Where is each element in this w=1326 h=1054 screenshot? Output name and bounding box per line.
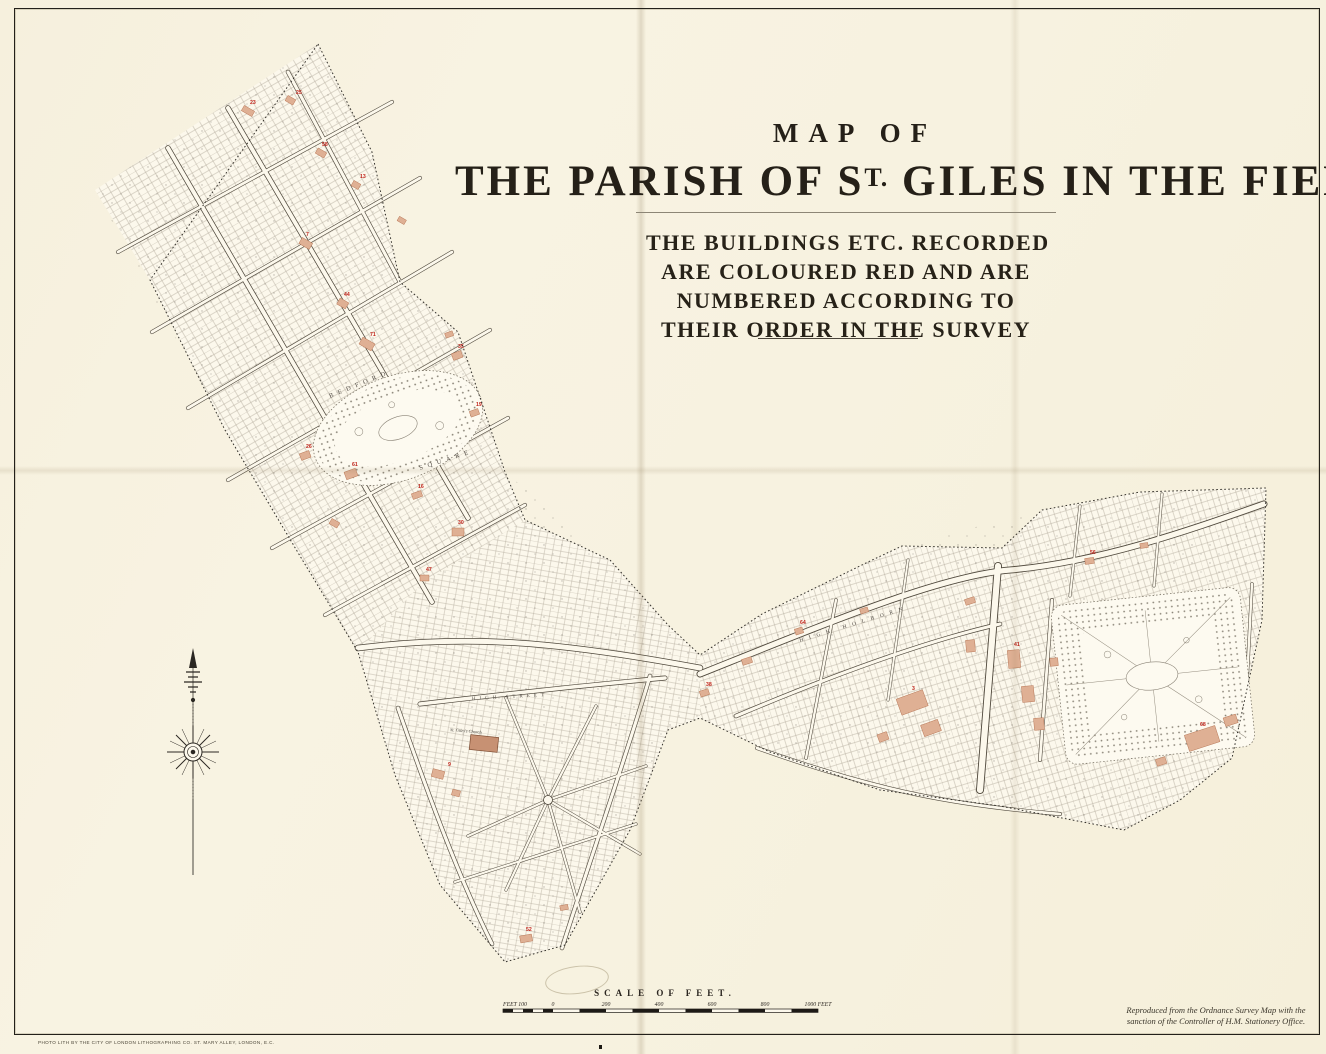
svg-text:1000 FEET: 1000 FEET bbox=[805, 1002, 833, 1008]
map-of-heading: MAP OF bbox=[455, 118, 1255, 149]
svg-text:800: 800 bbox=[761, 1002, 770, 1008]
title-block: MAP OF THE PARISH OF ST. GILES IN THE FI… bbox=[455, 118, 1255, 206]
map-sheet: 23 25 58 13 7 44 71 26 35 19 61 16 30 47… bbox=[0, 0, 1326, 1054]
page-title: THE PARISH OF ST. GILES IN THE FIELDS. bbox=[455, 157, 1255, 206]
lithographer-imprint: PHOTO LITH BY THE CITY OF LONDON LITHOGR… bbox=[38, 1040, 275, 1045]
svg-text:200: 200 bbox=[602, 1002, 611, 1008]
note-line: NUMBERED ACCORDING TO bbox=[646, 286, 1046, 315]
legend-note: THE BUILDINGS ETC. RECORDED ARE COLOURED… bbox=[646, 228, 1046, 344]
svg-text:400: 400 bbox=[655, 1001, 664, 1008]
svg-text:FEET 100: FEET 100 bbox=[502, 1002, 527, 1008]
note-line: THEIR ORDER IN THE SURVEY bbox=[646, 315, 1046, 344]
note-underline bbox=[758, 338, 918, 339]
scale-title: SCALE OF FEET. bbox=[495, 988, 835, 998]
scale-bar: SCALE OF FEET. FEET 100 0 200 400 600 80… bbox=[495, 988, 835, 1025]
svg-text:600: 600 bbox=[708, 1002, 717, 1008]
title-divider bbox=[636, 212, 1056, 213]
registration-tick bbox=[599, 1045, 602, 1049]
scale-bar-graphic: FEET 100 0 200 400 600 800 1000 FEET bbox=[495, 998, 835, 1020]
note-line: THE BUILDINGS ETC. RECORDED bbox=[646, 228, 1046, 257]
note-line: ARE COLOURED RED AND ARE bbox=[646, 257, 1046, 286]
svg-text:0: 0 bbox=[552, 1002, 555, 1008]
os-attribution: Reproduced from the Ordnance Survey Map … bbox=[1108, 1005, 1324, 1026]
